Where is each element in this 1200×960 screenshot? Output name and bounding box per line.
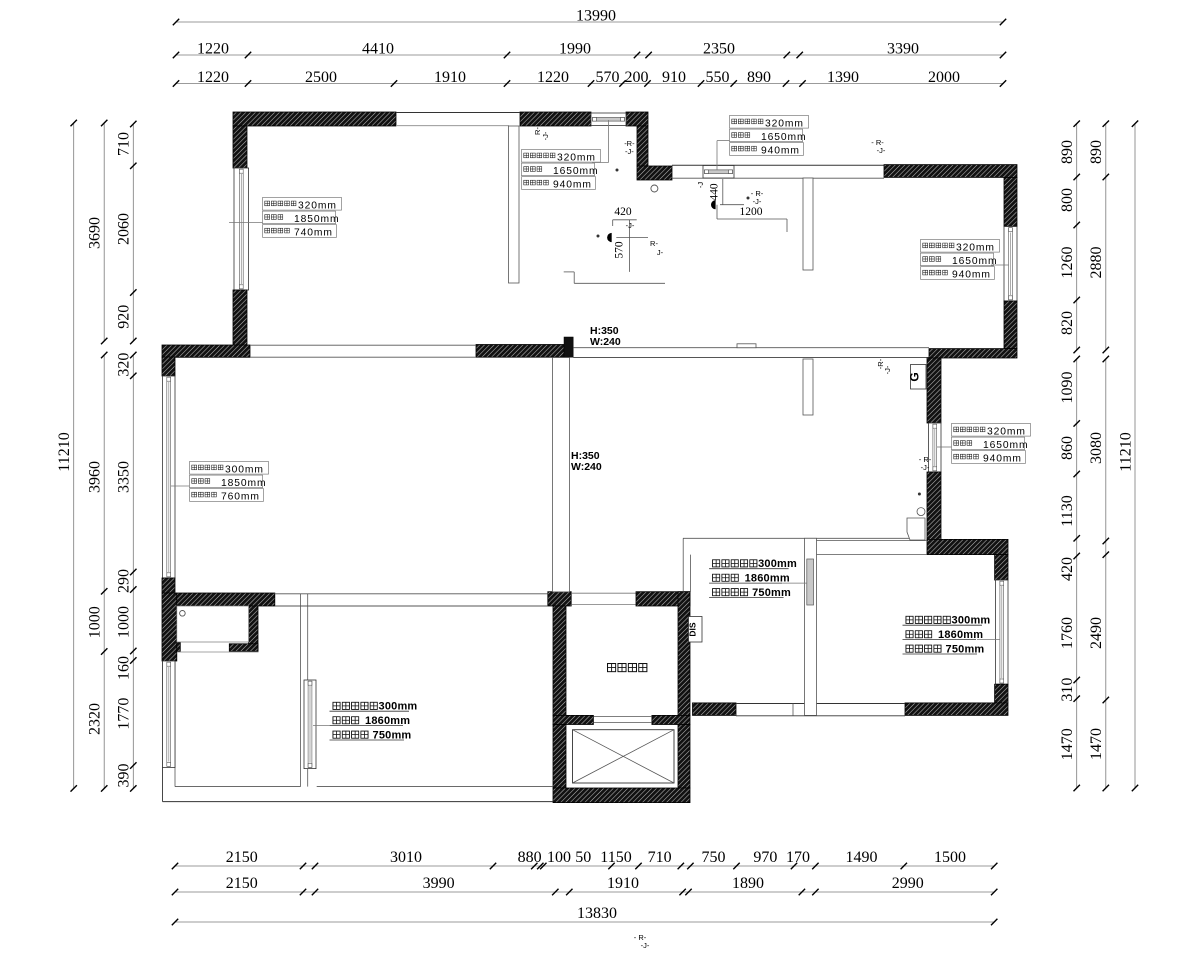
svg-text:550: 550 xyxy=(706,69,730,86)
svg-text:2500: 2500 xyxy=(305,69,337,86)
svg-text:3390: 3390 xyxy=(887,41,919,58)
svg-text:1770: 1770 xyxy=(116,698,133,730)
svg-text:300mm: 300mm xyxy=(379,701,418,713)
svg-text:1850mm: 1850mm xyxy=(221,478,266,489)
svg-text:320mm: 320mm xyxy=(765,118,804,129)
svg-text:2320: 2320 xyxy=(87,703,104,735)
svg-text:300mm: 300mm xyxy=(225,464,264,475)
svg-text:3010: 3010 xyxy=(390,849,422,866)
svg-text:440: 440 xyxy=(709,183,721,201)
svg-text:W:240: W:240 xyxy=(571,461,602,473)
svg-text:910: 910 xyxy=(662,69,686,86)
svg-text:G: G xyxy=(908,372,922,381)
svg-text:-J-: -J- xyxy=(921,463,930,472)
svg-text:750mm: 750mm xyxy=(373,729,412,741)
svg-text:-J-: -J- xyxy=(626,221,635,230)
svg-text:940mm: 940mm xyxy=(952,270,991,281)
svg-text:13990: 13990 xyxy=(576,8,616,25)
svg-text:290: 290 xyxy=(116,569,133,593)
svg-text:1500: 1500 xyxy=(934,849,966,866)
svg-text:1090: 1090 xyxy=(1059,372,1076,404)
svg-text:2000: 2000 xyxy=(928,69,960,86)
svg-text:320mm: 320mm xyxy=(298,200,337,211)
svg-text:1850mm: 1850mm xyxy=(294,214,339,225)
svg-text:1000: 1000 xyxy=(87,606,104,638)
svg-text:50: 50 xyxy=(575,849,591,866)
svg-text:1130: 1130 xyxy=(1059,495,1076,526)
svg-text:920: 920 xyxy=(116,305,133,329)
svg-text:760mm: 760mm xyxy=(221,492,260,503)
svg-text:1650mm: 1650mm xyxy=(983,440,1028,451)
svg-text:W:240: W:240 xyxy=(590,336,621,348)
svg-text:J-: J- xyxy=(657,248,664,257)
svg-text:890: 890 xyxy=(1088,140,1105,164)
svg-text:100: 100 xyxy=(547,849,571,866)
svg-text:R-: R- xyxy=(650,239,658,248)
svg-text:1760: 1760 xyxy=(1059,617,1076,649)
svg-text:1220: 1220 xyxy=(537,69,569,86)
svg-text:2060: 2060 xyxy=(116,213,133,245)
svg-text:1220: 1220 xyxy=(197,41,229,58)
svg-text:1910: 1910 xyxy=(434,69,466,86)
svg-text:2880: 2880 xyxy=(1088,247,1105,279)
svg-text:4410: 4410 xyxy=(362,41,394,58)
svg-text:750mm: 750mm xyxy=(946,643,985,655)
svg-text:1150: 1150 xyxy=(600,849,631,866)
svg-text:570: 570 xyxy=(614,241,626,259)
svg-text:800: 800 xyxy=(1059,188,1076,212)
svg-text:820: 820 xyxy=(1059,311,1076,335)
svg-text:11210: 11210 xyxy=(1117,432,1134,471)
svg-text:1990: 1990 xyxy=(559,41,591,58)
svg-text:1860mm: 1860mm xyxy=(365,715,410,727)
svg-text:320mm: 320mm xyxy=(557,152,596,163)
svg-text:390: 390 xyxy=(116,764,133,788)
svg-text:-J-: -J- xyxy=(625,147,634,156)
svg-text:750: 750 xyxy=(702,849,726,866)
svg-text:1650mm: 1650mm xyxy=(553,166,598,177)
svg-text:-J-: -J- xyxy=(753,197,762,206)
svg-text:1650mm: 1650mm xyxy=(761,132,806,143)
svg-text:2990: 2990 xyxy=(892,875,924,892)
svg-text:1860mm: 1860mm xyxy=(938,629,983,641)
svg-text:420: 420 xyxy=(614,206,632,218)
svg-text:710: 710 xyxy=(648,849,672,866)
svg-text:1220: 1220 xyxy=(197,69,229,86)
svg-text:320: 320 xyxy=(116,353,133,377)
svg-text:1470: 1470 xyxy=(1059,728,1076,760)
svg-text:13830: 13830 xyxy=(577,905,617,922)
svg-text:860: 860 xyxy=(1059,436,1076,460)
svg-text:300mm: 300mm xyxy=(758,558,797,570)
svg-text:DIS: DIS xyxy=(688,622,698,637)
svg-text:3960: 3960 xyxy=(87,461,104,493)
svg-text:3990: 3990 xyxy=(423,875,455,892)
svg-text:750mm: 750mm xyxy=(752,587,791,599)
svg-text:890: 890 xyxy=(747,69,771,86)
svg-text:3690: 3690 xyxy=(87,217,104,249)
svg-text:-J-: -J- xyxy=(883,365,892,374)
svg-text:740mm: 740mm xyxy=(294,228,333,239)
svg-text:-J-: -J- xyxy=(877,146,886,155)
svg-text:1910: 1910 xyxy=(607,875,639,892)
svg-text:320mm: 320mm xyxy=(956,242,995,253)
svg-text:200: 200 xyxy=(625,69,649,86)
svg-text:570: 570 xyxy=(596,69,620,86)
svg-text:710: 710 xyxy=(116,132,133,156)
svg-text:940mm: 940mm xyxy=(553,180,592,191)
svg-text:940mm: 940mm xyxy=(761,146,800,157)
svg-text:420: 420 xyxy=(1059,557,1076,581)
svg-text:1200: 1200 xyxy=(740,206,763,218)
svg-text:1470: 1470 xyxy=(1088,728,1105,760)
svg-text:3350: 3350 xyxy=(116,461,133,493)
svg-text:170: 170 xyxy=(786,849,810,866)
svg-text:940mm: 940mm xyxy=(983,454,1022,465)
svg-text:1490: 1490 xyxy=(846,849,878,866)
svg-text:160: 160 xyxy=(116,656,133,680)
svg-text:-J-: -J- xyxy=(641,941,650,950)
svg-text:320mm: 320mm xyxy=(987,426,1026,437)
svg-text:1890: 1890 xyxy=(732,875,764,892)
svg-text:2150: 2150 xyxy=(226,849,258,866)
svg-text:-J: -J xyxy=(696,182,705,188)
svg-text:880: 880 xyxy=(518,849,542,866)
svg-text:-J-: -J- xyxy=(541,131,550,140)
svg-text:1000: 1000 xyxy=(116,606,133,638)
svg-text:3080: 3080 xyxy=(1088,432,1105,464)
svg-text:2350: 2350 xyxy=(703,41,735,58)
svg-text:2150: 2150 xyxy=(226,875,258,892)
svg-text:2490: 2490 xyxy=(1088,617,1105,649)
svg-text:11210: 11210 xyxy=(56,432,73,471)
svg-text:300mm: 300mm xyxy=(952,615,991,627)
svg-text:310: 310 xyxy=(1059,678,1076,702)
svg-text:1260: 1260 xyxy=(1059,247,1076,279)
svg-text:1390: 1390 xyxy=(827,69,859,86)
svg-text:890: 890 xyxy=(1059,140,1076,164)
svg-text:970: 970 xyxy=(753,849,777,866)
svg-text:1650mm: 1650mm xyxy=(952,256,997,267)
